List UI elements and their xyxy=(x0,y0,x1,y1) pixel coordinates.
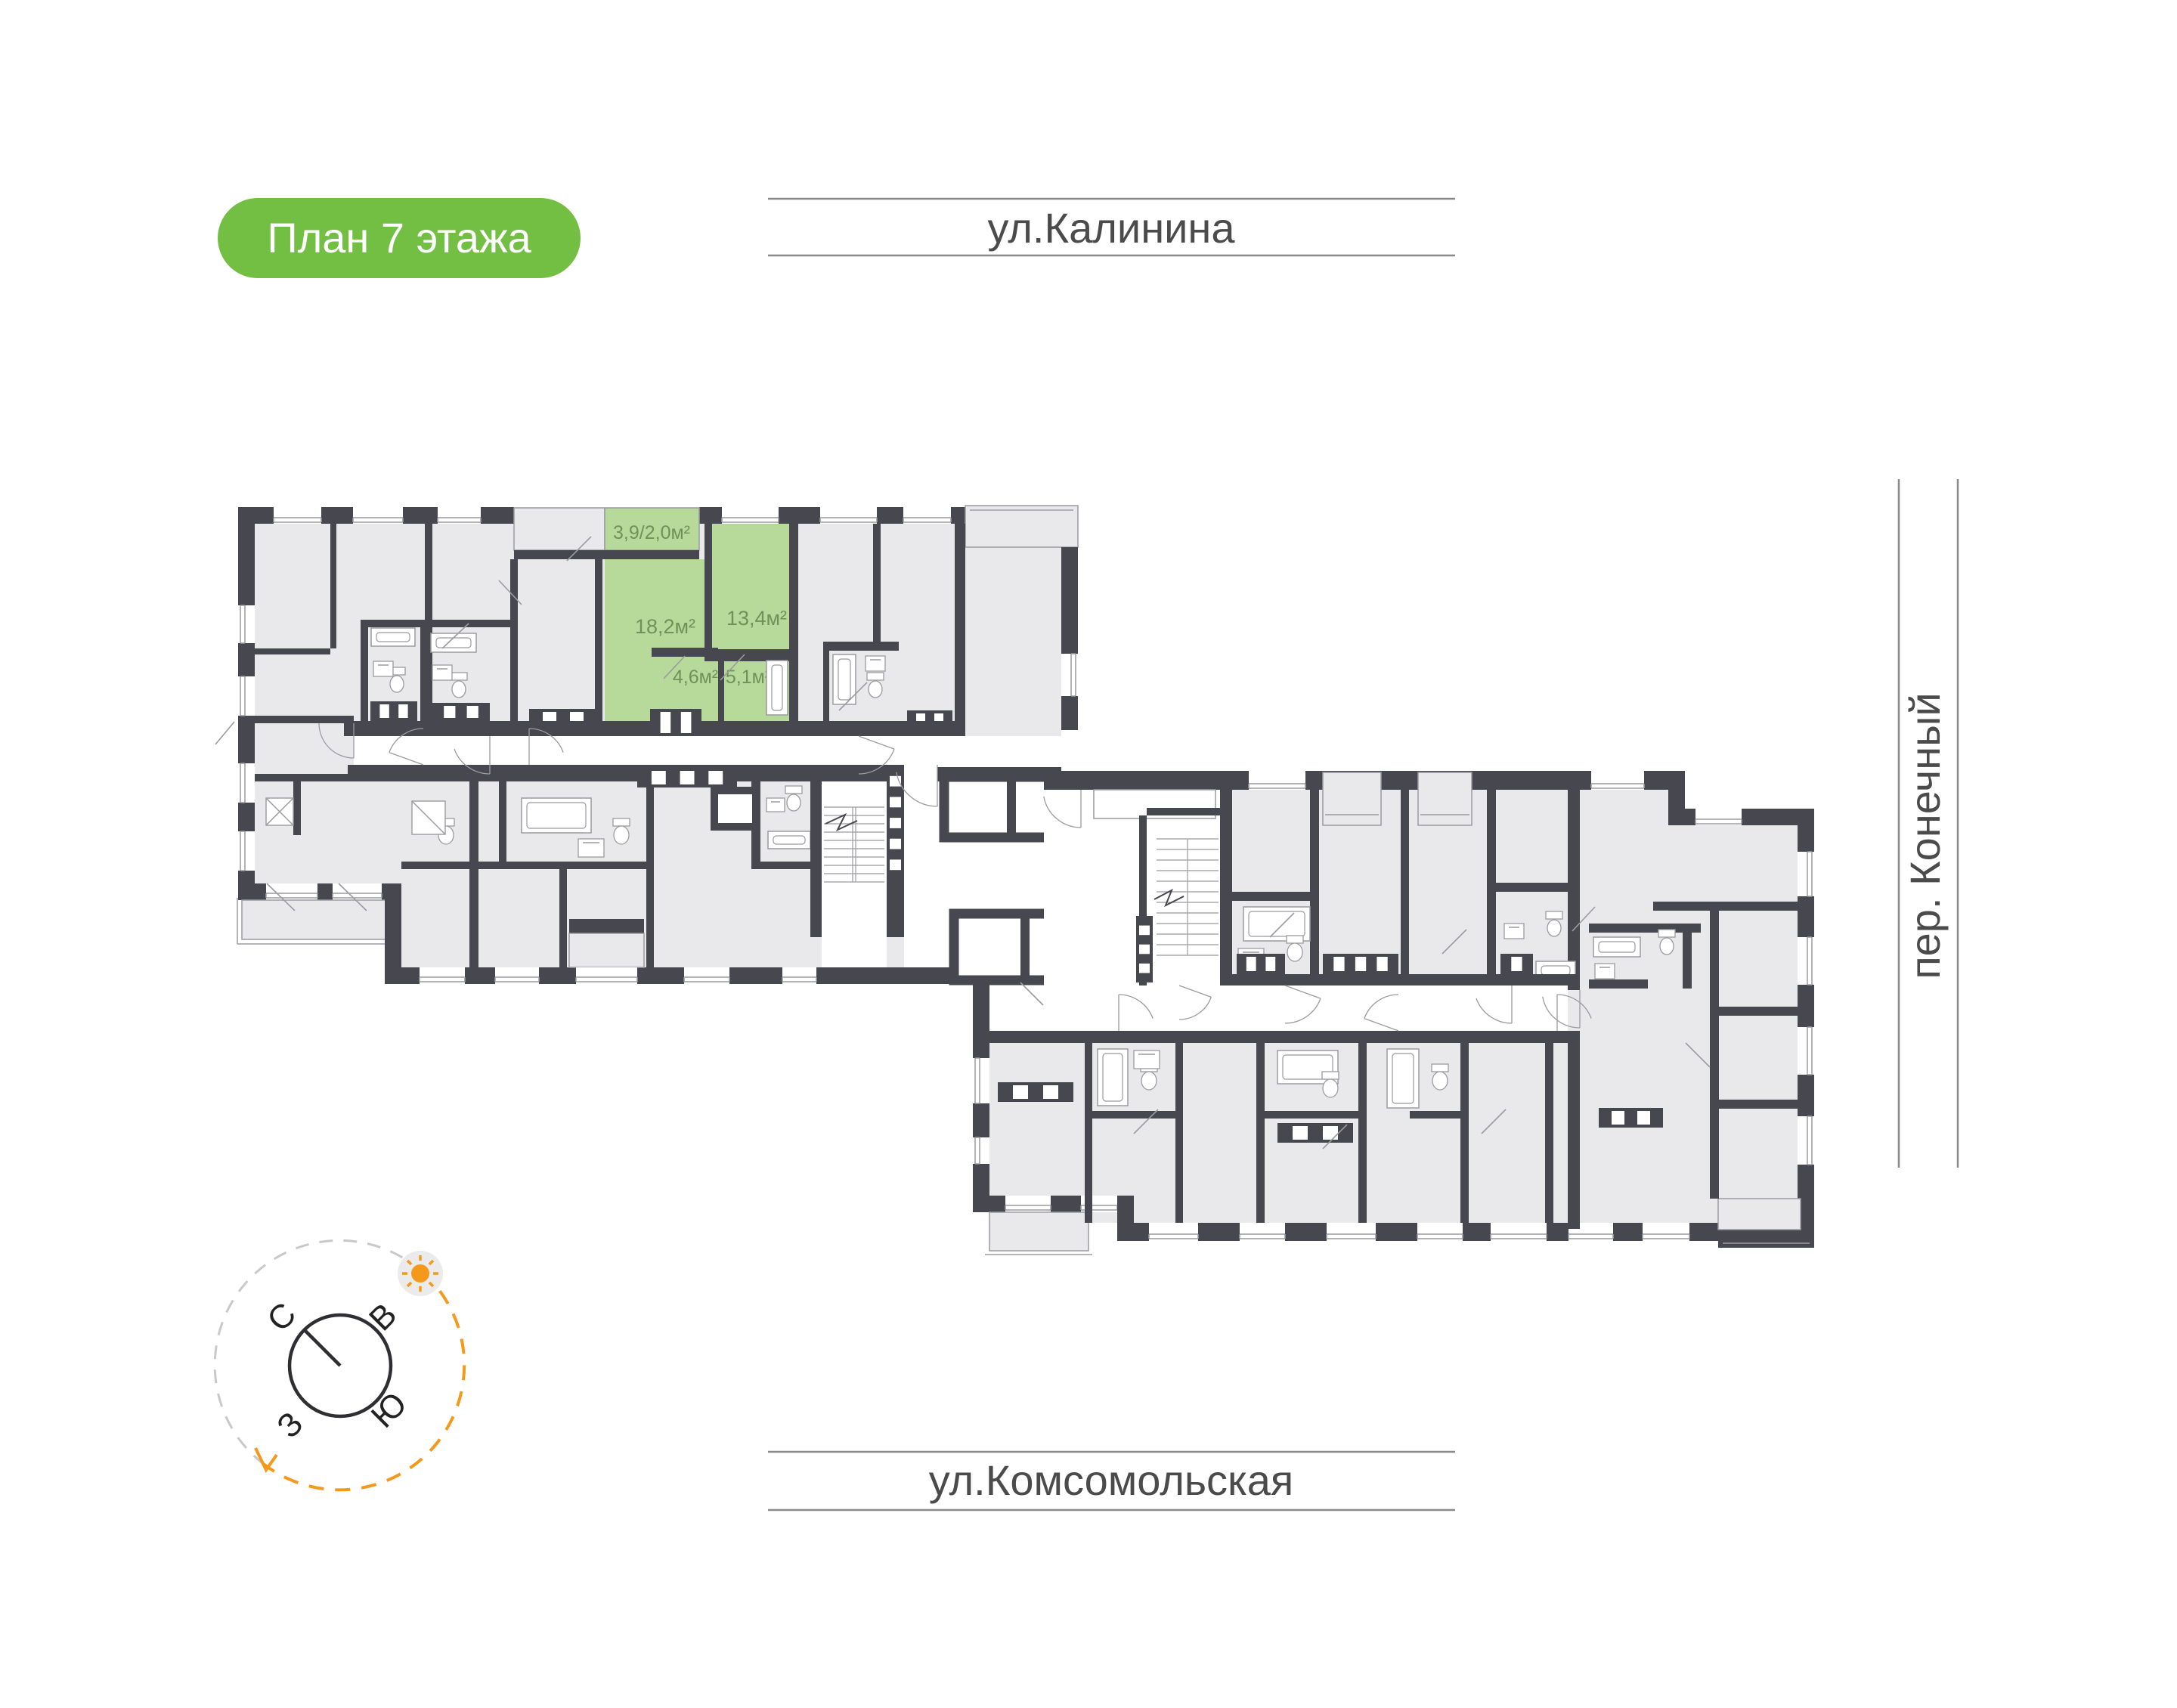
svg-text:3,9/2,0м²: 3,9/2,0м² xyxy=(613,522,690,543)
svg-text:ул.Комсомольская: ул.Комсомольская xyxy=(929,1456,1294,1504)
svg-text:5,1м²: 5,1м² xyxy=(726,667,771,688)
svg-text:4,6м²: 4,6м² xyxy=(673,667,718,688)
svg-text:13,4м²: 13,4м² xyxy=(726,607,787,630)
svg-text:18,2м²: 18,2м² xyxy=(635,615,695,638)
svg-text:ул.Калинина: ул.Калинина xyxy=(987,204,1235,252)
svg-text:План 7 этажа: План 7 этажа xyxy=(267,214,531,261)
svg-text:пер. Конечный: пер. Конечный xyxy=(1901,692,1949,979)
